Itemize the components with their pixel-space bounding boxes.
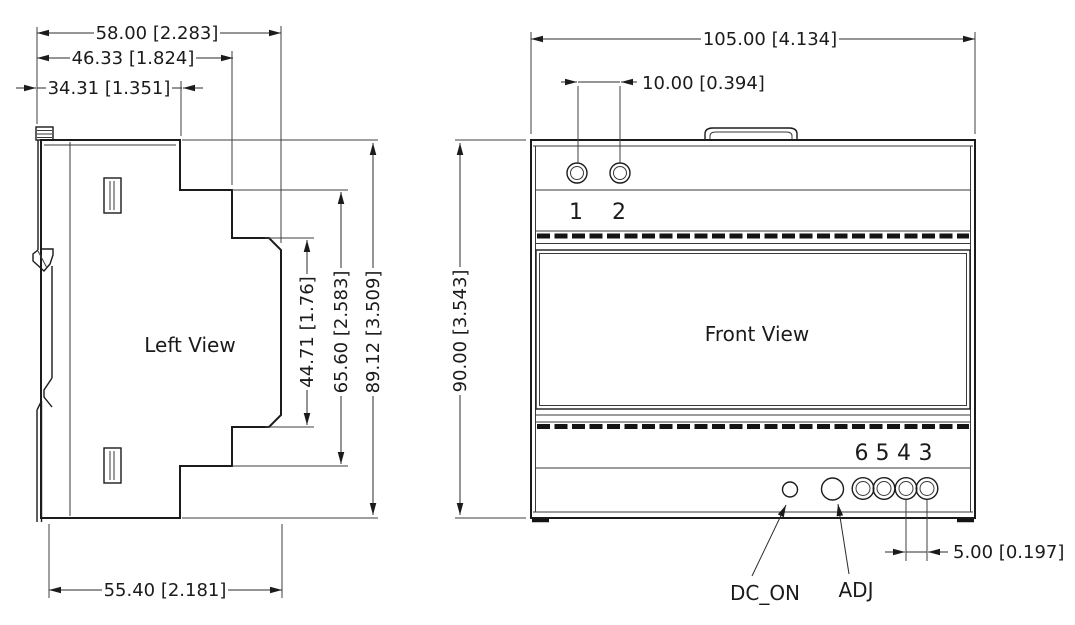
dim-width-mid: 46.33 [1.824]	[37, 48, 233, 69]
terminal-2-label: 2	[612, 200, 626, 225]
dim-height-overall-left-text: 89.12 [3.509]	[363, 271, 384, 394]
adj-label: ADJ	[839, 578, 874, 602]
dim-width-bottom-text: 55.40 [2.181]	[104, 580, 227, 601]
terminal-4-label: 4	[897, 441, 911, 466]
dim-front-width-overall-text: 105.00 [4.134]	[703, 29, 837, 50]
din-clip-bar	[37, 401, 42, 522]
dim-width-inner-text: 34.31 [1.351]	[48, 78, 171, 99]
left-view-outline	[41, 140, 281, 518]
terminal-1-label: 1	[569, 200, 583, 225]
front-view: 1 2 6 5 4 3 Front View	[450, 29, 1064, 605]
dim-terminal-spacing: 5.00 [0.197]	[885, 542, 1064, 563]
mechanical-drawing-canvas: Left View 58.00 [2.283] 46.33 [1.8	[0, 0, 1075, 625]
dim-height-mid-text: 65.60 [2.583]	[331, 271, 352, 394]
dim-terminal-spacing-text: 5.00 [0.197]	[953, 542, 1064, 563]
terminal-5-label: 5	[876, 441, 890, 466]
dim-height-overall-left: 89.12 [3.509]	[363, 143, 384, 515]
top-handle-tab-inner	[710, 132, 792, 139]
dim-front-height-overall: 90.00 [3.543]	[450, 143, 471, 515]
front-view-label: Front View	[705, 322, 809, 346]
dim-width-overall-text: 58.00 [2.283]	[96, 23, 219, 44]
top-grille-tab	[36, 127, 53, 140]
dim-height-mid: 65.60 [2.583]	[331, 192, 352, 464]
dim-width-mid-text: 46.33 [1.824]	[72, 48, 195, 69]
dim-width-overall: 58.00 [2.283]	[37, 23, 281, 44]
dc-on-label: DC_ON	[730, 581, 800, 605]
dim-width-bottom: 55.40 [2.181]	[49, 580, 282, 601]
dim-front-height-overall-text: 90.00 [3.543]	[450, 270, 471, 393]
dim-height-inner-text: 44.71 [1.76]	[297, 276, 318, 387]
dim-width-inner: 34.31 [1.351]	[16, 78, 203, 99]
dim-top-hole-spacing-text: 10.00 [0.394]	[642, 73, 765, 94]
dim-height-inner: 44.71 [1.76]	[297, 240, 318, 425]
dim-top-hole-spacing: 10.00 [0.394]	[561, 73, 765, 94]
terminal-3-label: 3	[919, 441, 933, 466]
terminal-6-label: 6	[855, 441, 869, 466]
top-handle-tab-outer	[705, 128, 797, 139]
dim-front-width-overall: 105.00 [4.134]	[531, 29, 975, 50]
left-view: Left View 58.00 [2.283] 46.33 [1.8	[16, 23, 384, 601]
left-view-label: Left View	[144, 333, 235, 357]
